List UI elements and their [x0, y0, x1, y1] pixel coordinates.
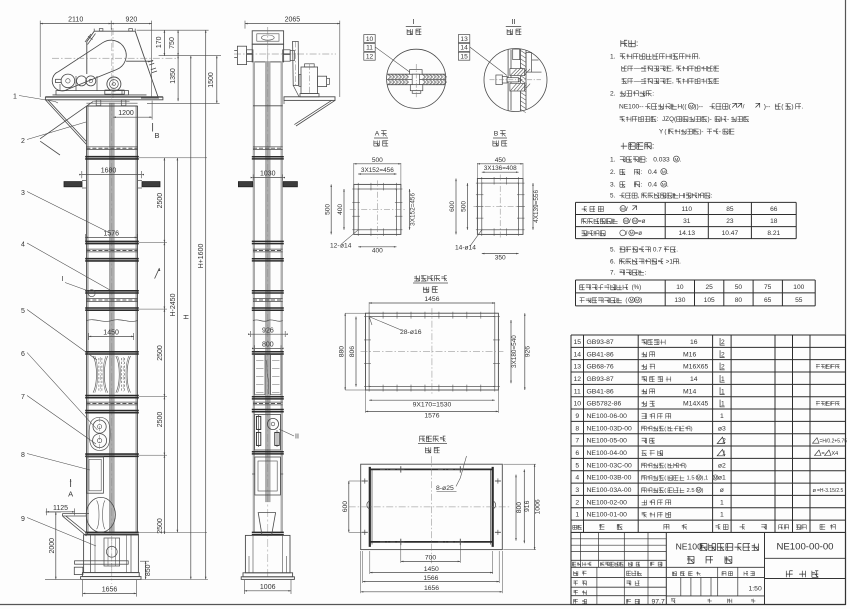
svg-text:M14: M14 [683, 388, 696, 395]
svg-text:65: 65 [764, 297, 772, 304]
svg-text:1680: 1680 [101, 168, 117, 175]
svg-text:80: 80 [735, 297, 743, 304]
svg-text:18: 18 [770, 218, 778, 225]
svg-text:105: 105 [704, 297, 715, 304]
svg-text:(%): (%) [632, 284, 642, 291]
svg-text:1566: 1566 [423, 575, 438, 582]
svg-text:1: 1 [720, 499, 724, 506]
svg-text:A: A [375, 131, 380, 138]
svg-text:1: 1 [721, 401, 725, 408]
svg-text:0.4: 0.4 [648, 182, 657, 189]
svg-text:14: 14 [690, 376, 698, 383]
svg-text:14-ø14: 14-ø14 [455, 245, 476, 252]
svg-text:M: M [633, 218, 637, 223]
svg-text:NE100-04-00: NE100-04-00 [587, 450, 628, 457]
svg-text:.: . [676, 247, 678, 254]
svg-text:H+1600: H+1600 [198, 244, 205, 269]
svg-text:(: ( [664, 426, 666, 432]
svg-text:2: 2 [721, 339, 725, 346]
svg-text:800: 800 [262, 342, 274, 349]
svg-text:600: 600 [449, 201, 456, 212]
svg-text:1456: 1456 [424, 296, 439, 303]
svg-text:): ) [685, 463, 687, 469]
svg-text:9: 9 [575, 413, 579, 420]
svg-text:-: - [719, 129, 721, 136]
svg-text:5.: 5. [610, 193, 616, 200]
svg-text:=ø: =ø [638, 218, 646, 225]
svg-text:NE100-03A-00: NE100-03A-00 [587, 487, 632, 494]
svg-text:8.21: 8.21 [767, 230, 780, 237]
svg-text:NE100-03C-00: NE100-03C-00 [587, 462, 633, 469]
svg-text:ø: ø [720, 487, 724, 494]
svg-text:1.: 1. [610, 54, 616, 61]
svg-text:M16: M16 [683, 351, 696, 358]
svg-text:5: 5 [21, 308, 25, 315]
svg-text:GB41-86: GB41-86 [587, 388, 614, 395]
svg-text:): ) [702, 488, 704, 494]
svg-text:1576: 1576 [424, 413, 439, 420]
svg-text:/: / [626, 206, 628, 213]
svg-text:NE100-06-00: NE100-06-00 [587, 413, 628, 420]
svg-text:2500: 2500 [157, 193, 164, 209]
svg-text:M: M [674, 157, 678, 162]
svg-text::: : [646, 157, 648, 164]
svg-text:10.47: 10.47 [722, 230, 739, 237]
svg-text:28-ø16: 28-ø16 [400, 329, 422, 336]
svg-text:920: 920 [126, 17, 138, 24]
svg-text:926: 926 [262, 327, 274, 334]
svg-text::: : [657, 116, 659, 123]
svg-text:700: 700 [425, 555, 437, 562]
svg-text:1450: 1450 [424, 566, 439, 573]
svg-text:3: 3 [575, 487, 579, 494]
svg-text:M: M [630, 231, 634, 236]
svg-text:2: 2 [575, 499, 579, 506]
svg-text:2500: 2500 [157, 345, 164, 361]
svg-text:M: M [624, 218, 628, 223]
svg-text:M16X65: M16X65 [683, 364, 709, 371]
svg-text:170: 170 [156, 36, 163, 48]
svg-text:M14X45: M14X45 [683, 401, 709, 408]
svg-text:JZQ(: JZQ( [662, 116, 677, 123]
svg-text:14: 14 [573, 351, 581, 358]
svg-text:1656: 1656 [102, 586, 118, 593]
svg-text:926: 926 [525, 346, 532, 358]
svg-text::: : [640, 182, 642, 189]
svg-text:.: . [667, 182, 669, 189]
svg-text:11: 11 [366, 45, 373, 52]
svg-text:9: 9 [21, 516, 25, 523]
svg-text:(: ( [664, 476, 666, 482]
svg-text:1: 1 [722, 450, 726, 457]
svg-text:880: 880 [338, 346, 345, 358]
svg-text:50: 50 [735, 284, 743, 291]
svg-text:1.5: 1.5 [687, 476, 695, 482]
svg-text:350: 350 [495, 254, 506, 261]
svg-text:=H-3.15/2.5: =H-3.15/2.5 [817, 488, 843, 494]
svg-text:8: 8 [21, 452, 25, 459]
svg-text:M: M [689, 104, 693, 109]
svg-text:1006: 1006 [260, 584, 276, 591]
svg-text:1030: 1030 [260, 171, 276, 178]
svg-text:400: 400 [337, 204, 344, 215]
svg-text:12: 12 [573, 376, 581, 383]
svg-text:1.: 1. [610, 157, 616, 164]
svg-text:15: 15 [460, 53, 468, 60]
svg-text:6.: 6. [610, 259, 616, 266]
svg-text:1: 1 [575, 512, 579, 519]
svg-text:23: 23 [726, 218, 734, 225]
svg-text:14.13: 14.13 [679, 230, 696, 237]
svg-text:2500: 2500 [157, 412, 164, 428]
svg-text:GB41-86: GB41-86 [587, 351, 614, 358]
svg-text:1: 1 [13, 94, 17, 101]
svg-text:ø2: ø2 [718, 462, 726, 469]
svg-text:2500: 2500 [157, 518, 164, 534]
svg-text:16: 16 [690, 339, 698, 346]
svg-text:7.: 7. [610, 270, 616, 277]
svg-text:85: 85 [726, 206, 734, 213]
svg-text:4: 4 [575, 475, 579, 482]
svg-text:75: 75 [764, 284, 772, 291]
svg-text:): ) [640, 297, 642, 304]
svg-text:B: B [154, 131, 159, 140]
svg-text:0.033: 0.033 [653, 157, 670, 164]
svg-text:.: . [667, 169, 669, 176]
svg-text:2.5: 2.5 [687, 488, 695, 494]
svg-text:750: 750 [169, 37, 176, 49]
svg-text:3X152=456: 3X152=456 [361, 167, 394, 174]
svg-text:2000: 2000 [49, 538, 56, 554]
svg-text:NE100-02-00: NE100-02-00 [587, 499, 628, 506]
svg-text:A: A [68, 490, 73, 499]
svg-text:11: 11 [574, 388, 581, 395]
svg-text:1: 1 [720, 413, 724, 420]
svg-text:1125: 1125 [53, 505, 68, 512]
svg-text:),1: ),1 [702, 476, 709, 482]
svg-text:8: 8 [575, 425, 579, 432]
svg-text::: : [652, 142, 654, 151]
svg-text:25: 25 [706, 284, 714, 291]
svg-text:916: 916 [524, 500, 531, 512]
svg-text:H((: H(( [677, 104, 687, 111]
svg-text:2110: 2110 [68, 17, 83, 24]
svg-text:3X152=456: 3X152=456 [409, 193, 416, 226]
svg-text:M: M [630, 298, 634, 303]
svg-text:1200: 1200 [118, 110, 134, 117]
svg-text::: : [645, 270, 647, 277]
svg-text:1450: 1450 [103, 329, 119, 336]
svg-text:800: 800 [516, 502, 523, 514]
svg-text:2: 2 [721, 351, 725, 358]
svg-text:NE100-00-00: NE100-00-00 [776, 542, 833, 553]
svg-text::: : [652, 91, 654, 98]
svg-text:M: M [697, 475, 701, 480]
svg-text:NE100-01-00: NE100-01-00 [587, 512, 628, 519]
svg-text:.: . [802, 104, 804, 111]
svg-text:9X170=1530: 9X170=1530 [413, 401, 452, 408]
svg-text:55: 55 [795, 297, 803, 304]
svg-text:1656: 1656 [424, 585, 439, 592]
svg-text:-: - [727, 116, 729, 123]
svg-text:NE100--: NE100-- [619, 104, 644, 111]
svg-text:14: 14 [460, 45, 468, 52]
svg-text:))--: ))-- [694, 104, 703, 111]
svg-text:H: H [184, 314, 191, 319]
svg-text:/: / [743, 104, 745, 111]
svg-text:2: 2 [21, 138, 25, 145]
svg-text:0.4: 0.4 [648, 169, 657, 176]
svg-text:ø: ø [813, 488, 817, 494]
svg-text:6: 6 [575, 450, 579, 457]
svg-text:7: 7 [21, 394, 25, 401]
svg-text:)-: )- [708, 116, 712, 123]
svg-text:1006: 1006 [534, 499, 541, 514]
svg-text:): ) [691, 426, 693, 432]
svg-text:3X180=540: 3X180=540 [511, 335, 518, 368]
svg-text:4: 4 [21, 242, 25, 249]
svg-text:10: 10 [366, 36, 374, 43]
svg-text:13: 13 [460, 36, 468, 43]
svg-text:66: 66 [770, 206, 778, 213]
svg-text:.: . [679, 157, 681, 164]
svg-text:12: 12 [366, 53, 374, 60]
svg-text:2.: 2. [610, 169, 616, 176]
svg-text:M: M [662, 169, 666, 174]
svg-text:110: 110 [682, 206, 693, 213]
svg-text:,: , [672, 66, 674, 73]
svg-text:=ø: =ø [635, 230, 643, 237]
svg-text:NE100-03D-00: NE100-03D-00 [587, 425, 633, 432]
svg-text:=H/0.2+5.75: =H/0.2+5.75 [820, 439, 848, 445]
svg-text:850: 850 [145, 564, 152, 576]
svg-text:): ) [791, 104, 793, 111]
svg-text:13: 13 [573, 364, 581, 371]
svg-text:1: 1 [720, 512, 724, 519]
svg-text:NE100-03B-00: NE100-03B-00 [587, 475, 632, 482]
svg-text:500: 500 [324, 204, 331, 215]
svg-text:/: / [629, 218, 631, 225]
svg-text:3X136=408: 3X136=408 [484, 165, 517, 172]
svg-text:400: 400 [372, 248, 383, 255]
svg-text:M: M [621, 206, 625, 211]
svg-text:)-: )- [699, 129, 703, 136]
svg-text:1: 1 [721, 376, 725, 383]
svg-text:II: II [511, 17, 515, 26]
svg-text:.: . [679, 259, 681, 266]
svg-text:NE100-05-00: NE100-05-00 [587, 438, 628, 445]
svg-text:B: B [494, 131, 499, 138]
svg-text:1576: 1576 [104, 230, 120, 237]
svg-text:100: 100 [793, 284, 804, 291]
svg-text:(: ( [664, 463, 666, 469]
svg-text:M: M [635, 298, 639, 303]
svg-text:>1: >1 [666, 259, 674, 266]
svg-text:500: 500 [461, 201, 468, 212]
svg-text:2: 2 [722, 438, 726, 445]
svg-text:,: , [638, 193, 640, 200]
svg-text:2.: 2. [610, 91, 616, 98]
svg-text:2065: 2065 [285, 17, 301, 24]
svg-text:,: , [672, 78, 674, 85]
svg-text:I: I [62, 276, 64, 283]
svg-text:7: 7 [575, 438, 579, 445]
svg-text:10: 10 [573, 401, 581, 408]
svg-text:3.: 3. [610, 182, 616, 189]
svg-text:M: M [697, 487, 701, 492]
svg-text:2: 2 [721, 364, 725, 371]
svg-text:I: I [412, 17, 414, 26]
svg-text:1:50: 1:50 [749, 586, 762, 593]
svg-text:GB93-87: GB93-87 [587, 339, 614, 346]
svg-text:GB68-76: GB68-76 [587, 364, 614, 371]
svg-text:)--: )-- [764, 104, 771, 111]
svg-text:NE100: NE100 [676, 542, 702, 552]
svg-text:10: 10 [676, 284, 684, 291]
svg-text::: : [640, 169, 642, 176]
svg-text::: : [710, 193, 712, 200]
svg-text:ø3: ø3 [718, 425, 726, 432]
svg-text:500: 500 [372, 157, 383, 164]
svg-text:=: = [822, 451, 825, 457]
svg-text:12-: 12- [330, 243, 340, 250]
svg-text:X4: X4 [832, 451, 839, 457]
svg-text:II: II [295, 434, 299, 441]
svg-text:GB5782-86: GB5782-86 [587, 401, 622, 408]
svg-text:M: M [662, 182, 666, 187]
svg-text:.: . [698, 54, 700, 61]
svg-text:(: ( [664, 488, 666, 494]
svg-text:1: 1 [721, 388, 725, 395]
svg-text:450: 450 [495, 157, 506, 164]
svg-text:8-ø25: 8-ø25 [436, 485, 454, 492]
svg-text:806: 806 [349, 346, 356, 358]
svg-text:15: 15 [573, 339, 581, 346]
svg-text:1350: 1350 [170, 68, 177, 84]
svg-text:97.7: 97.7 [652, 598, 665, 605]
svg-text:130: 130 [674, 297, 685, 304]
svg-text:H-2450: H-2450 [170, 293, 177, 316]
svg-text:31: 31 [683, 218, 691, 225]
svg-text:1500: 1500 [208, 72, 215, 88]
svg-text:4X139=556: 4X139=556 [533, 190, 540, 223]
svg-text:5.: 5. [610, 247, 616, 254]
svg-text:GB93-87: GB93-87 [587, 376, 614, 383]
svg-text:600: 600 [342, 501, 349, 513]
svg-text::: : [636, 39, 638, 48]
svg-text:6: 6 [21, 351, 25, 358]
svg-text:ø1: ø1 [718, 475, 726, 482]
svg-text:5: 5 [575, 462, 579, 469]
svg-text:/: / [626, 230, 628, 237]
svg-text:3: 3 [21, 190, 25, 197]
svg-text:0.7: 0.7 [653, 247, 662, 254]
